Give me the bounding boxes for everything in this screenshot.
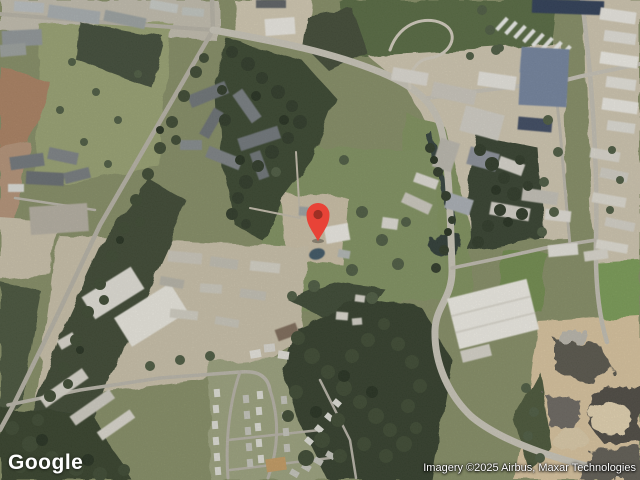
satellite-imagery	[0, 0, 640, 480]
imagery-attribution: Imagery ©2025 Airbus, Maxar Technologies	[423, 462, 636, 474]
map-canvas[interactable]: Google Imagery ©2025 Airbus, Maxar Techn…	[0, 0, 640, 480]
google-logo[interactable]: Google	[8, 451, 83, 475]
